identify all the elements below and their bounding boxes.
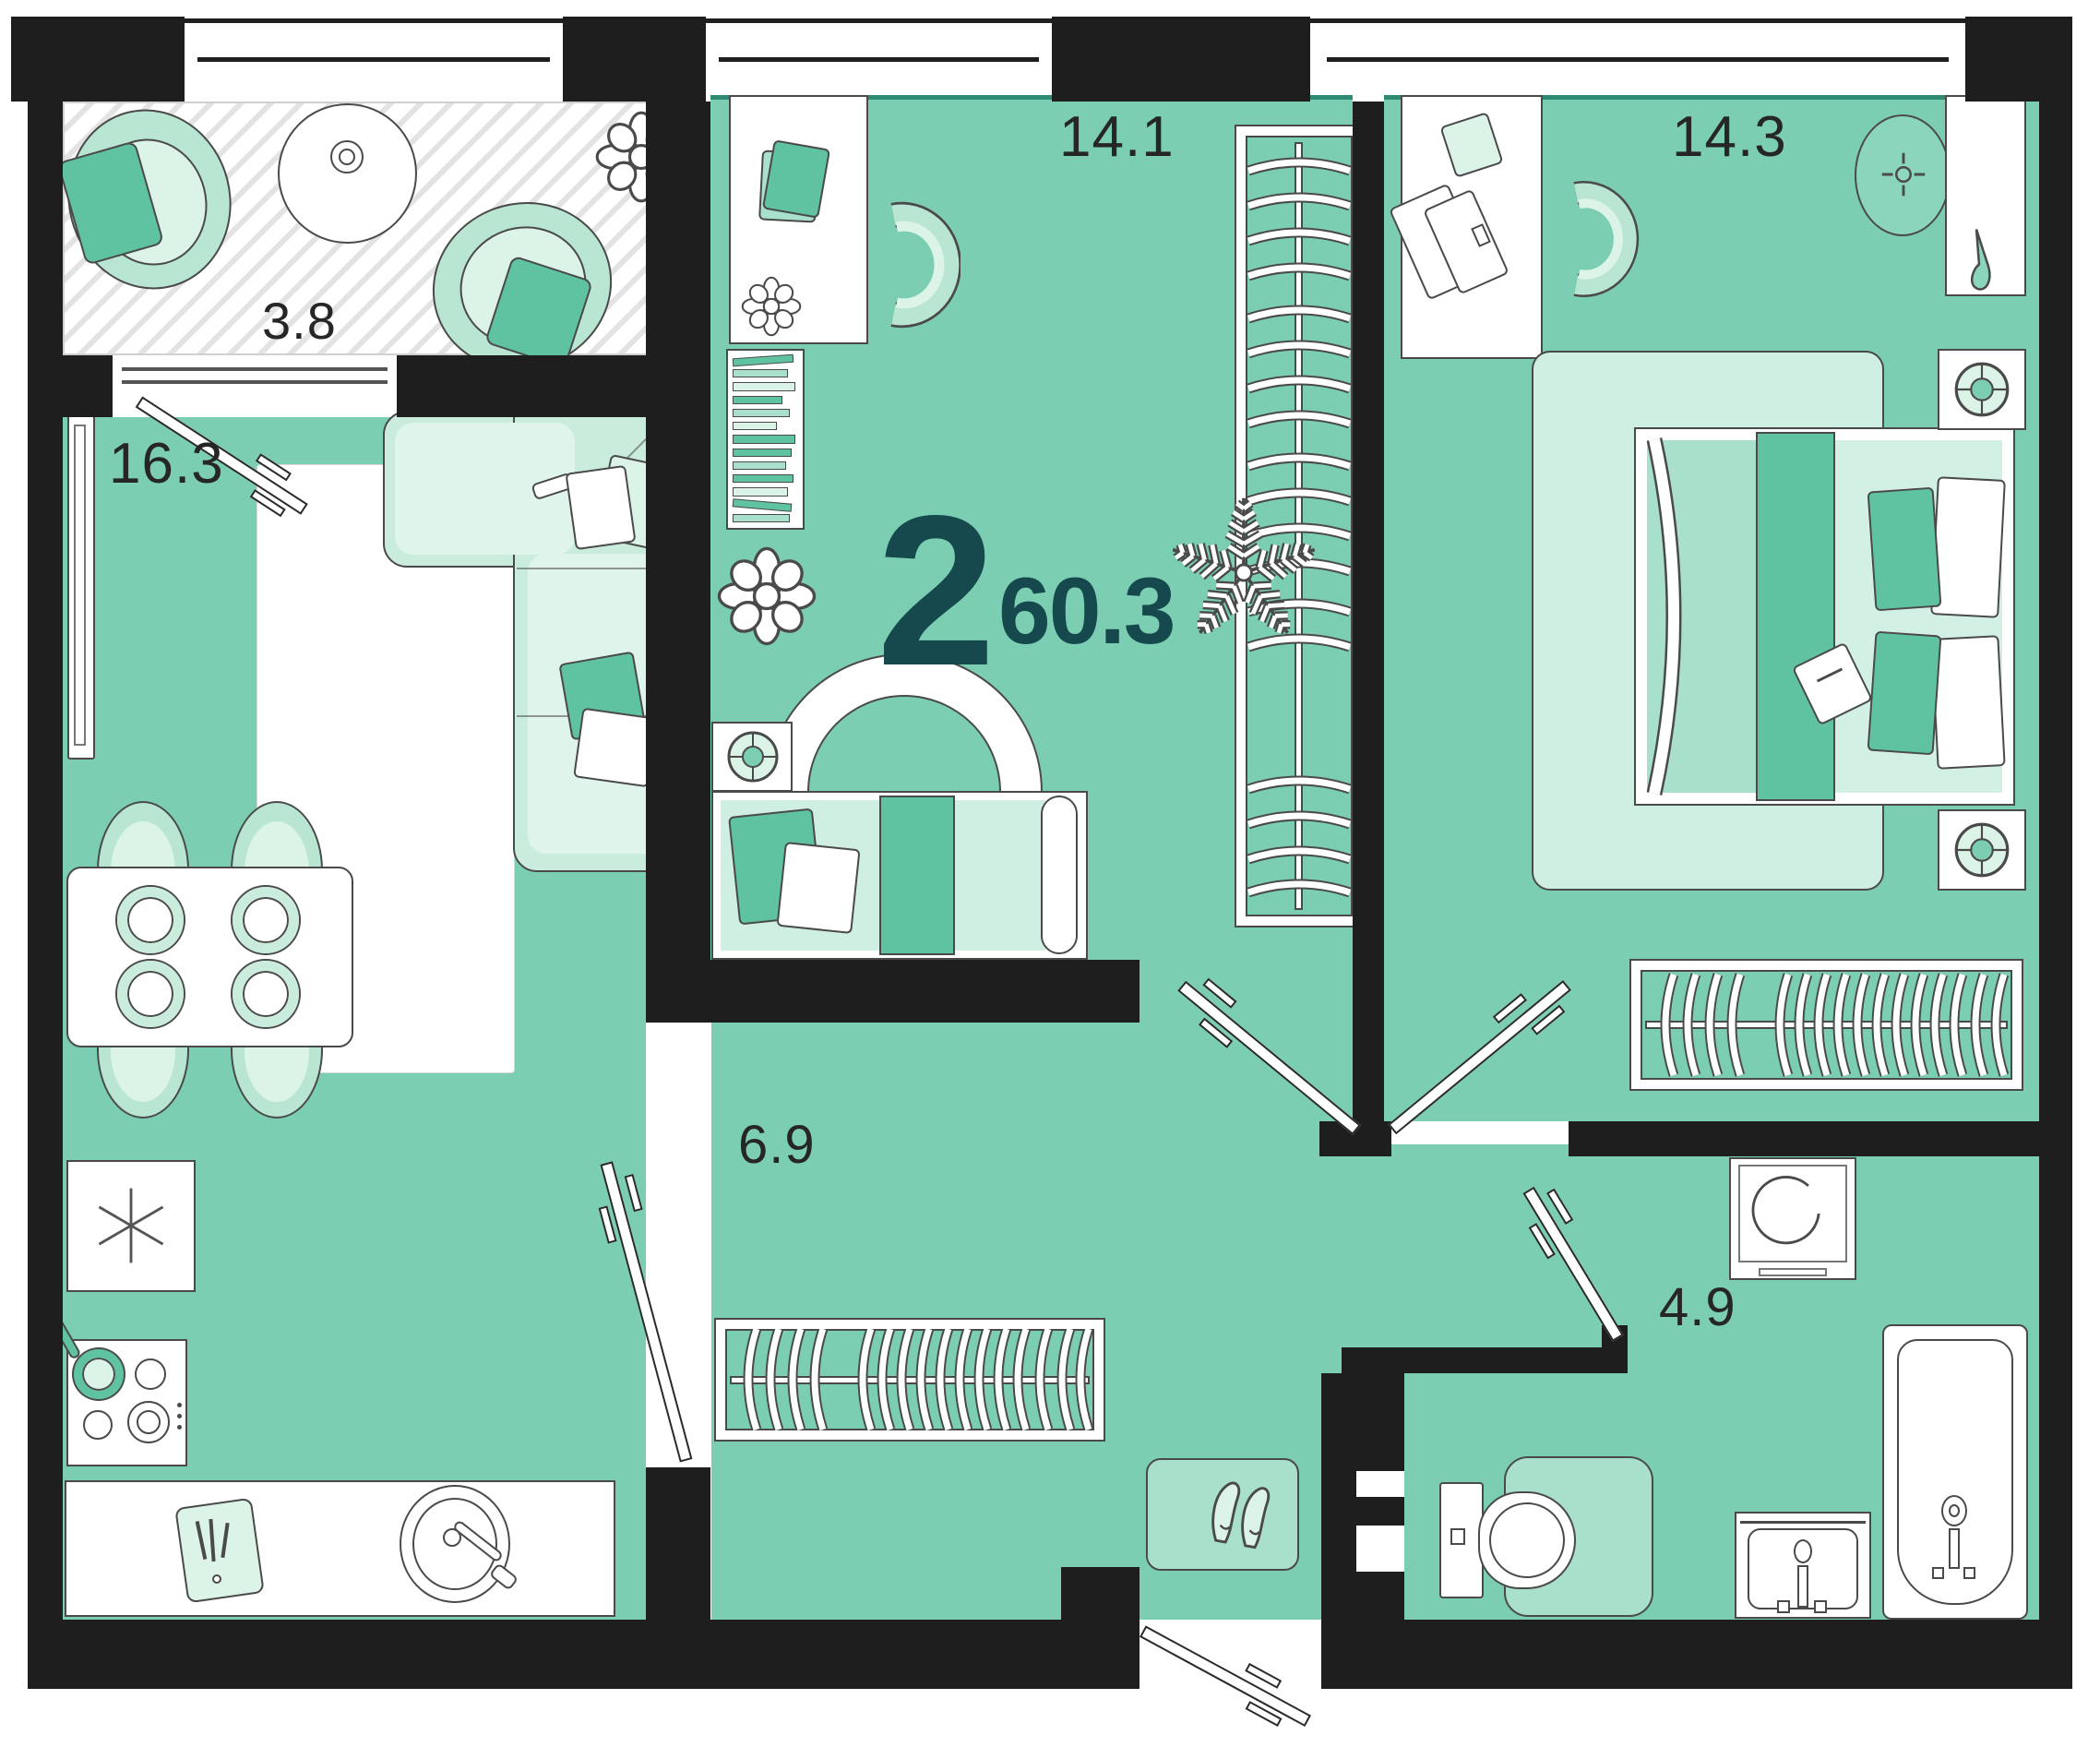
plate	[117, 961, 184, 1027]
bathroom-area-label: 4.9	[1659, 1281, 1736, 1334]
kitchen-faucet-knob	[443, 1528, 461, 1547]
wall-bedroom-bottom	[1569, 1121, 2039, 1156]
stove-dot	[177, 1425, 182, 1430]
book	[733, 487, 788, 496]
window-balcony	[185, 18, 563, 23]
entrance-door	[1139, 1625, 1311, 1727]
wall-bottom-right	[1321, 1620, 2072, 1689]
book	[733, 514, 790, 522]
wall-right	[2039, 102, 2072, 1689]
stove-dot	[177, 1403, 182, 1407]
balcony-table-center-dot	[339, 149, 355, 165]
door-hinge-mark	[1246, 1701, 1283, 1727]
bedroom-area-label: 14.3	[1672, 109, 1787, 166]
washing-machine-drum-icon	[1749, 1170, 1836, 1257]
wall-bottom-left	[28, 1620, 1139, 1689]
window-balcony-inner	[197, 57, 550, 62]
door-hinge-mark	[1245, 1663, 1282, 1689]
wall-room-separator	[1353, 102, 1384, 1121]
bedroom-pillow	[1930, 635, 2005, 770]
bedroom-wardrobe-hangers	[1641, 970, 2012, 1080]
wall-bath-top	[1342, 1347, 1628, 1373]
book	[733, 435, 795, 443]
shoes-icon	[1195, 1468, 1287, 1561]
pan	[74, 1349, 124, 1399]
window-room1	[706, 18, 1052, 23]
balcony-area-label: 3.8	[262, 295, 337, 347]
window-room1-inner	[719, 57, 1039, 62]
sink-faucet-handle	[1814, 1600, 1827, 1613]
toilet-tank-button	[1450, 1528, 1465, 1545]
tv-screen-line	[74, 425, 86, 746]
bedroom-nightstand-lamp-icon	[1952, 360, 2011, 419]
palm-plant-icon	[1156, 483, 1331, 663]
room1-area-label: 14.1	[1059, 109, 1175, 166]
fridge-asterisk-icon	[87, 1181, 175, 1270]
sink-faucet-stem	[1797, 1565, 1808, 1608]
cutting-board-hole	[212, 1574, 221, 1584]
toilet-seat	[1489, 1502, 1565, 1578]
tub-faucet-handle	[1963, 1567, 1975, 1579]
room1-bed-blanket	[879, 796, 955, 955]
room1-bookshelf	[726, 349, 805, 530]
floor-plan: 3.8 16.3 14.1 14.3 6.9 4.9 2 60.3	[0, 0, 2100, 1747]
room1-desk-plant-icon	[740, 271, 803, 341]
wall-top-b	[1052, 17, 1310, 102]
hallway-east-floor	[1353, 1144, 1628, 1373]
book	[733, 396, 782, 404]
washing-machine-tray	[1759, 1268, 1827, 1276]
window-bedroom	[1310, 18, 1965, 23]
sink-faucet-handle	[1777, 1600, 1790, 1613]
hallway-door-gap-floor	[1139, 960, 1353, 1023]
total-area-number: 60.3	[998, 574, 1175, 650]
stove-burner	[83, 1410, 113, 1440]
plate	[117, 887, 184, 953]
tub-faucet-knob-inner	[1949, 1504, 1960, 1517]
tub-faucet-stem	[1949, 1528, 1960, 1569]
wall-niche	[1356, 1526, 1404, 1572]
bedroom-bed-headboard-curve	[1641, 434, 1700, 799]
room1-desk-chair	[868, 196, 961, 334]
book	[733, 409, 790, 417]
wall-top-a	[563, 17, 706, 102]
book	[733, 474, 793, 483]
tub-faucet-handle	[1932, 1567, 1944, 1579]
plate	[233, 961, 299, 1027]
stove-burner	[135, 1358, 166, 1390]
bathroom-sink-top-line	[1740, 1521, 1866, 1524]
wall-left	[28, 102, 63, 1620]
bedroom-pillow	[1930, 476, 2006, 618]
comb-icon	[1956, 225, 2015, 297]
balcony-window-line	[122, 380, 388, 384]
bedroom-bed-blanket	[1756, 432, 1835, 801]
wall-balcony-left	[28, 355, 113, 417]
wall-top-left	[11, 17, 185, 102]
book	[733, 369, 788, 377]
book	[733, 354, 793, 367]
room1-bed-pillow	[776, 842, 860, 934]
room1-plant-icon	[715, 543, 818, 650]
wall-top-right	[1965, 17, 2072, 102]
sofa-pillow	[565, 465, 636, 550]
book	[733, 461, 786, 470]
book	[733, 422, 777, 430]
balcony-window-line	[122, 367, 388, 371]
room-count-number: 2	[877, 506, 994, 677]
book	[733, 449, 792, 457]
hallway-wardrobe-hangers	[725, 1329, 1094, 1430]
cutting-board	[174, 1498, 265, 1604]
book	[733, 498, 793, 512]
stove-burner-inner	[137, 1410, 161, 1434]
bedroom-desk-chair	[1546, 181, 1644, 297]
wall-bottom-step	[1061, 1567, 1139, 1622]
sink-faucet-knob	[1794, 1539, 1812, 1563]
room1-nightstand-lamp-icon	[725, 729, 781, 784]
living-area-label: 16.3	[109, 436, 224, 493]
hallway-area-label: 6.9	[738, 1119, 816, 1172]
kitchen-counter	[65, 1480, 615, 1617]
stove-dot	[177, 1414, 182, 1418]
window-bedroom-inner	[1327, 57, 1949, 62]
wall-hall-column	[646, 1467, 710, 1620]
wall-niche	[1356, 1471, 1404, 1497]
plate	[233, 887, 299, 953]
wall-room1-bottom	[646, 960, 1139, 1023]
balcony-table	[278, 103, 417, 244]
wall-living-room1	[646, 102, 710, 960]
bedroom-rug-sparkle-icon	[1877, 148, 1930, 201]
dining-table	[66, 867, 353, 1047]
room1-desk-book	[762, 139, 830, 219]
bedroom-pillow	[1867, 487, 1942, 612]
bedroom-pillow	[1867, 631, 1942, 756]
bedroom-nightstand-lamp-icon	[1952, 820, 2011, 879]
room1-bed-bolster	[1041, 796, 1078, 954]
book	[733, 382, 795, 390]
room1-bed-mattress	[953, 800, 1045, 951]
